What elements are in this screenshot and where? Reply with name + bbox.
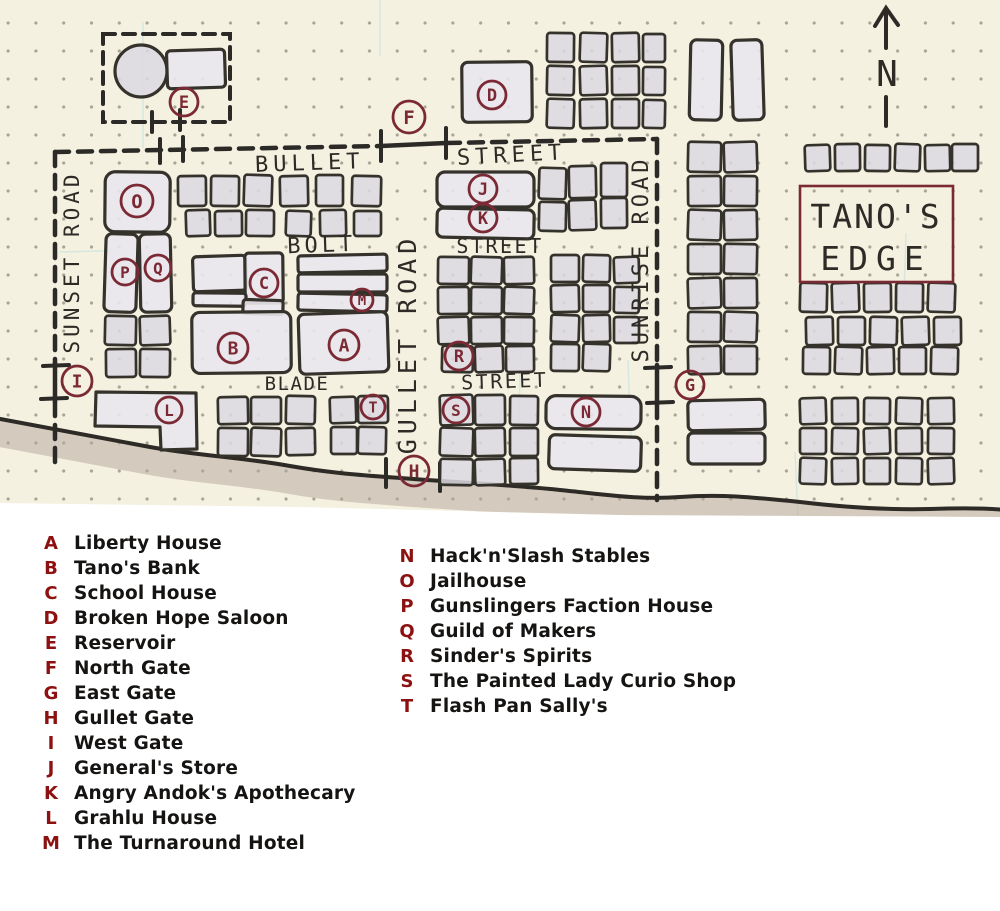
- building: [835, 144, 860, 171]
- legend-key: D: [36, 608, 66, 629]
- legend-column-2: NHack'n'Slash StablesOJailhousePGunsling…: [392, 544, 736, 719]
- building: [803, 347, 830, 374]
- building: [643, 100, 666, 128]
- building: [510, 458, 538, 484]
- building: [688, 399, 766, 431]
- legend-name: Gullet Gate: [74, 708, 194, 729]
- north-gate-segment: [381, 143, 446, 146]
- building: [800, 398, 827, 425]
- marker-letter: S: [451, 401, 461, 420]
- building: [331, 427, 357, 454]
- building: [724, 141, 758, 172]
- building: [724, 176, 757, 206]
- building: [251, 428, 282, 457]
- legend-name: Broken Hope Saloon: [74, 608, 289, 629]
- north-compass: N: [875, 8, 898, 126]
- marker-F: F: [393, 101, 425, 133]
- town-map: BULLET STREET BOLT STREET BLADE STREET S…: [0, 0, 1000, 522]
- building: [832, 398, 858, 424]
- legend-key: H: [36, 708, 66, 729]
- building: [547, 66, 575, 96]
- marker-letter: P: [120, 263, 130, 282]
- building: [832, 283, 860, 313]
- street-label-bullet: BULLET: [255, 149, 365, 178]
- building: [330, 397, 357, 424]
- legend-name: Gunslingers Faction House: [430, 596, 713, 617]
- street-label-bullet-street: STREET: [456, 140, 567, 171]
- building: [539, 168, 567, 200]
- building: [896, 428, 922, 454]
- building: [438, 317, 470, 345]
- building: [440, 459, 474, 486]
- legend-item-b: BTano's Bank: [36, 556, 355, 581]
- building: [896, 458, 923, 485]
- building: [902, 317, 930, 346]
- building: [280, 176, 309, 207]
- legend-key: L: [36, 808, 66, 829]
- building: [244, 175, 273, 207]
- marker-letter: O: [131, 191, 142, 213]
- legend-name: Sinder's Spirits: [430, 646, 592, 667]
- building: [215, 211, 242, 236]
- building: [547, 99, 575, 129]
- building: [438, 257, 469, 284]
- building: [583, 255, 611, 283]
- building: [192, 311, 292, 373]
- marker-letter: B: [228, 338, 239, 359]
- legend-item-s: SThe Painted Lady Curio Shop: [392, 669, 736, 694]
- building: [724, 346, 757, 374]
- building: [551, 315, 580, 343]
- building: [105, 316, 137, 346]
- legend-key: C: [36, 583, 66, 604]
- building: [551, 344, 579, 371]
- legend-name: Reservoir: [74, 633, 176, 654]
- building: [612, 33, 640, 63]
- marker-letter: L: [164, 401, 174, 420]
- legend-item-p: PGunslingers Faction House: [392, 594, 736, 619]
- building: [504, 257, 535, 285]
- marker-letter: N: [581, 403, 591, 423]
- marker-I: I: [62, 366, 92, 396]
- marker-letter: Q: [153, 259, 163, 278]
- legend-item-f: FNorth Gate: [36, 656, 355, 681]
- building: [471, 257, 503, 285]
- building: [583, 285, 610, 312]
- legend-item-e: EReservoir: [36, 631, 355, 656]
- building: [193, 293, 246, 307]
- marker-letter: M: [358, 293, 366, 309]
- building: [583, 315, 611, 343]
- legend-key: G: [36, 683, 66, 704]
- town-title-line2: EDGE: [820, 239, 931, 278]
- building: [580, 99, 608, 129]
- building: [731, 40, 764, 121]
- legend-key: R: [392, 646, 422, 667]
- marker-E: E: [170, 88, 198, 116]
- building: [870, 317, 898, 346]
- building: [895, 144, 921, 172]
- building: [688, 433, 765, 464]
- building: [934, 317, 961, 345]
- building: [246, 210, 274, 236]
- legend-key: T: [392, 696, 422, 717]
- reservoir-tank: [115, 45, 167, 97]
- legend-item-a: ALiberty House: [36, 531, 355, 556]
- building: [899, 347, 926, 374]
- building: [688, 312, 721, 342]
- building: [925, 145, 951, 172]
- building: [688, 176, 721, 206]
- legend-name: The Painted Lady Curio Shop: [430, 671, 736, 692]
- building: [800, 428, 826, 454]
- building: [569, 166, 597, 199]
- building: [864, 283, 891, 312]
- building: [724, 244, 758, 275]
- building: [864, 428, 891, 455]
- legend-name: Grahlu House: [74, 808, 217, 829]
- building: [475, 459, 506, 486]
- building: [539, 202, 567, 232]
- legend-item-g: GEast Gate: [36, 681, 355, 706]
- building: [583, 344, 611, 372]
- legend-name: Tano's Bank: [74, 558, 200, 579]
- building: [832, 458, 859, 485]
- building: [580, 66, 608, 96]
- building: [286, 428, 316, 456]
- legend-name: Flash Pan Sally's: [430, 696, 608, 717]
- legend-name: Angry Andok's Apothecary: [74, 783, 355, 804]
- building: [643, 34, 665, 62]
- building: [551, 255, 579, 282]
- building: [643, 67, 665, 95]
- marker-letter: C: [259, 274, 269, 294]
- building: [298, 274, 387, 292]
- legend-item-n: NHack'n'Slash Stables: [392, 544, 736, 569]
- building: [286, 396, 316, 425]
- building: [835, 347, 863, 375]
- legend-item-h: HGullet Gate: [36, 706, 355, 731]
- marker-G: G: [676, 371, 704, 399]
- building: [510, 428, 538, 456]
- building: [800, 283, 828, 313]
- building: [358, 427, 387, 455]
- building: [952, 144, 978, 171]
- legend-column-1: ALiberty HouseBTano's BankCSchool HouseD…: [36, 531, 355, 856]
- legend-name: Hack'n'Slash Stables: [430, 546, 650, 567]
- building: [316, 175, 343, 206]
- legend-key: B: [36, 558, 66, 579]
- marker-letter: K: [478, 209, 489, 229]
- legend-item-q: QGuild of Makers: [392, 619, 736, 644]
- building: [186, 210, 211, 237]
- building: [547, 33, 574, 62]
- street-label-bolt: BOLT: [287, 232, 357, 259]
- building: [438, 287, 469, 314]
- building: [805, 145, 831, 172]
- building: [724, 210, 758, 241]
- building: [928, 428, 954, 454]
- building: [140, 349, 170, 377]
- legend-name: Guild of Makers: [430, 621, 596, 642]
- building: [689, 40, 723, 121]
- legend-item-t: TFlash Pan Sally's: [392, 694, 736, 719]
- building: [865, 145, 890, 171]
- building: [106, 349, 136, 377]
- building: [688, 142, 722, 173]
- legend-item-c: CSchool House: [36, 581, 355, 606]
- building: [864, 398, 890, 424]
- road-label-gullet: GULLET ROAD: [393, 234, 422, 455]
- marker-letter: T: [368, 398, 377, 416]
- building: [504, 287, 535, 315]
- legend-item-k: KAngry Andok's Apothecary: [36, 781, 355, 806]
- building: [931, 347, 959, 375]
- building: [504, 317, 534, 344]
- building: [140, 316, 171, 346]
- legend-key: E: [36, 633, 66, 654]
- building: [800, 458, 827, 485]
- building: [724, 311, 758, 342]
- legend-key: P: [392, 596, 422, 617]
- building: [928, 398, 955, 425]
- marker-letter: G: [685, 376, 695, 396]
- building: [354, 211, 381, 236]
- map-paper: BULLET STREET BOLT STREET BLADE STREET S…: [0, 0, 1000, 522]
- marker-H: H: [399, 456, 429, 486]
- legend-name: Liberty House: [74, 533, 222, 554]
- legend-key: F: [36, 658, 66, 679]
- building: [806, 317, 834, 346]
- legend-key: O: [392, 571, 422, 592]
- building: [864, 458, 890, 484]
- building: [475, 395, 505, 425]
- building: [580, 33, 608, 63]
- building: [548, 435, 641, 472]
- legend-name: School House: [74, 583, 217, 604]
- legend-name: East Gate: [74, 683, 176, 704]
- building: [928, 283, 956, 313]
- building: [569, 200, 597, 231]
- building: [218, 428, 248, 456]
- road-label-sunrise: SUNRISE ROAD: [629, 156, 654, 363]
- legend-item-j: JGeneral's Store: [36, 756, 355, 781]
- building: [510, 396, 538, 425]
- legend-item-i: IWest Gate: [36, 731, 355, 756]
- road-label-sunset: SUNSET ROAD: [60, 170, 84, 353]
- legend-key: K: [36, 783, 66, 804]
- legend-name: Jailhouse: [430, 571, 526, 592]
- legend-key: Q: [392, 621, 422, 642]
- building: [251, 397, 281, 424]
- building: [551, 285, 580, 313]
- legend-key: S: [392, 671, 422, 692]
- building: [218, 397, 249, 425]
- building: [896, 283, 923, 312]
- marker-letter: R: [454, 347, 465, 367]
- building: [471, 317, 502, 344]
- marker-letter: A: [339, 335, 350, 356]
- marker-letter: F: [403, 107, 414, 129]
- street-label-blade: BLADE: [265, 373, 330, 395]
- compass-n-label: N: [876, 54, 898, 95]
- building: [688, 244, 721, 274]
- legend-key: I: [36, 733, 66, 754]
- legend-name: North Gate: [74, 658, 191, 679]
- building: [601, 198, 627, 228]
- marker-letter: H: [409, 461, 420, 482]
- marker-letter: D: [487, 86, 497, 106]
- building: [612, 66, 639, 95]
- building: [192, 255, 246, 292]
- street-label-blade-street: STREET: [461, 367, 549, 394]
- legend-key: M: [36, 833, 66, 854]
- town-title-box: TANO'S EDGE: [800, 186, 953, 282]
- legend-key: N: [392, 546, 422, 567]
- legend-name: West Gate: [74, 733, 183, 754]
- legend-key: J: [36, 758, 66, 779]
- marker-letter: J: [478, 180, 488, 200]
- town-title-line1: TANO'S: [810, 197, 941, 236]
- building: [612, 99, 639, 128]
- street-label-bolt-street: STREET: [456, 234, 543, 258]
- building: [688, 209, 722, 240]
- building: [475, 428, 506, 457]
- legend-name: General's Store: [74, 758, 238, 779]
- building: [440, 427, 474, 456]
- page: { "map": { "compass_label": "N", "title"…: [0, 0, 1000, 911]
- legend-item-o: OJailhouse: [392, 569, 736, 594]
- marker-letter: E: [179, 93, 189, 113]
- building: [601, 163, 627, 197]
- building: [724, 278, 757, 308]
- legend-key: A: [36, 533, 66, 554]
- legend-item-d: DBroken Hope Saloon: [36, 606, 355, 631]
- building: [471, 287, 502, 314]
- building: [867, 347, 895, 375]
- building: [166, 49, 225, 89]
- building: [211, 176, 239, 206]
- building: [928, 458, 955, 485]
- building: [832, 428, 859, 455]
- building: [688, 277, 722, 308]
- legend-item-m: MThe Turnaround Hotel: [36, 831, 355, 856]
- building: [838, 317, 865, 345]
- building: [896, 398, 923, 425]
- building: [352, 176, 382, 207]
- legend-name: The Turnaround Hotel: [74, 833, 305, 854]
- legend-item-r: RSinder's Spirits: [392, 644, 736, 669]
- legend-item-l: LGrahlu House: [36, 806, 355, 831]
- building: [178, 176, 206, 206]
- marker-letter: I: [72, 371, 83, 392]
